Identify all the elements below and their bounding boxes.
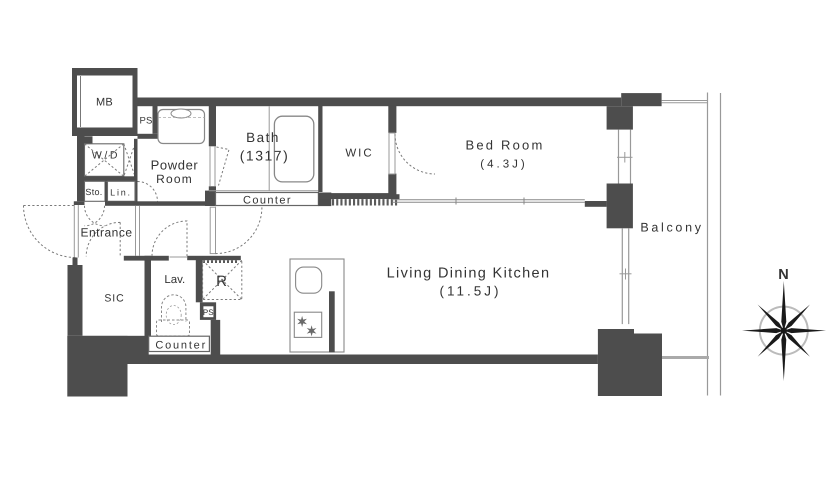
svg-text:MB: MB	[96, 97, 113, 109]
svg-text:Powder: Powder	[151, 158, 199, 173]
svg-text:(1317): (1317)	[240, 148, 289, 164]
svg-text:Counter: Counter	[243, 195, 292, 207]
svg-text:PS: PS	[139, 116, 152, 127]
svg-text:WIC: WIC	[345, 148, 373, 160]
svg-text:Bed Room: Bed Room	[465, 138, 544, 153]
svg-text:(4.3J): (4.3J)	[480, 159, 527, 171]
svg-text:SIC: SIC	[104, 292, 124, 304]
svg-text:Entrance: Entrance	[80, 226, 132, 240]
svg-text:Room: Room	[156, 172, 193, 186]
svg-text:Sto.: Sto.	[85, 187, 102, 197]
svg-text:N: N	[778, 267, 788, 283]
svg-text:(11.5J): (11.5J)	[439, 284, 501, 299]
svg-text:PS: PS	[203, 308, 214, 317]
svg-text:W/D: W/D	[92, 150, 120, 162]
svg-text:R: R	[216, 273, 227, 290]
svg-text:Lin.: Lin.	[110, 188, 132, 198]
svg-text:Living Dining Kitchen: Living Dining Kitchen	[387, 266, 551, 282]
svg-text:Bath: Bath	[246, 130, 280, 145]
svg-text:Counter: Counter	[155, 339, 207, 351]
svg-text:Balcony: Balcony	[640, 221, 703, 235]
svg-text:Lav.: Lav.	[164, 274, 185, 286]
